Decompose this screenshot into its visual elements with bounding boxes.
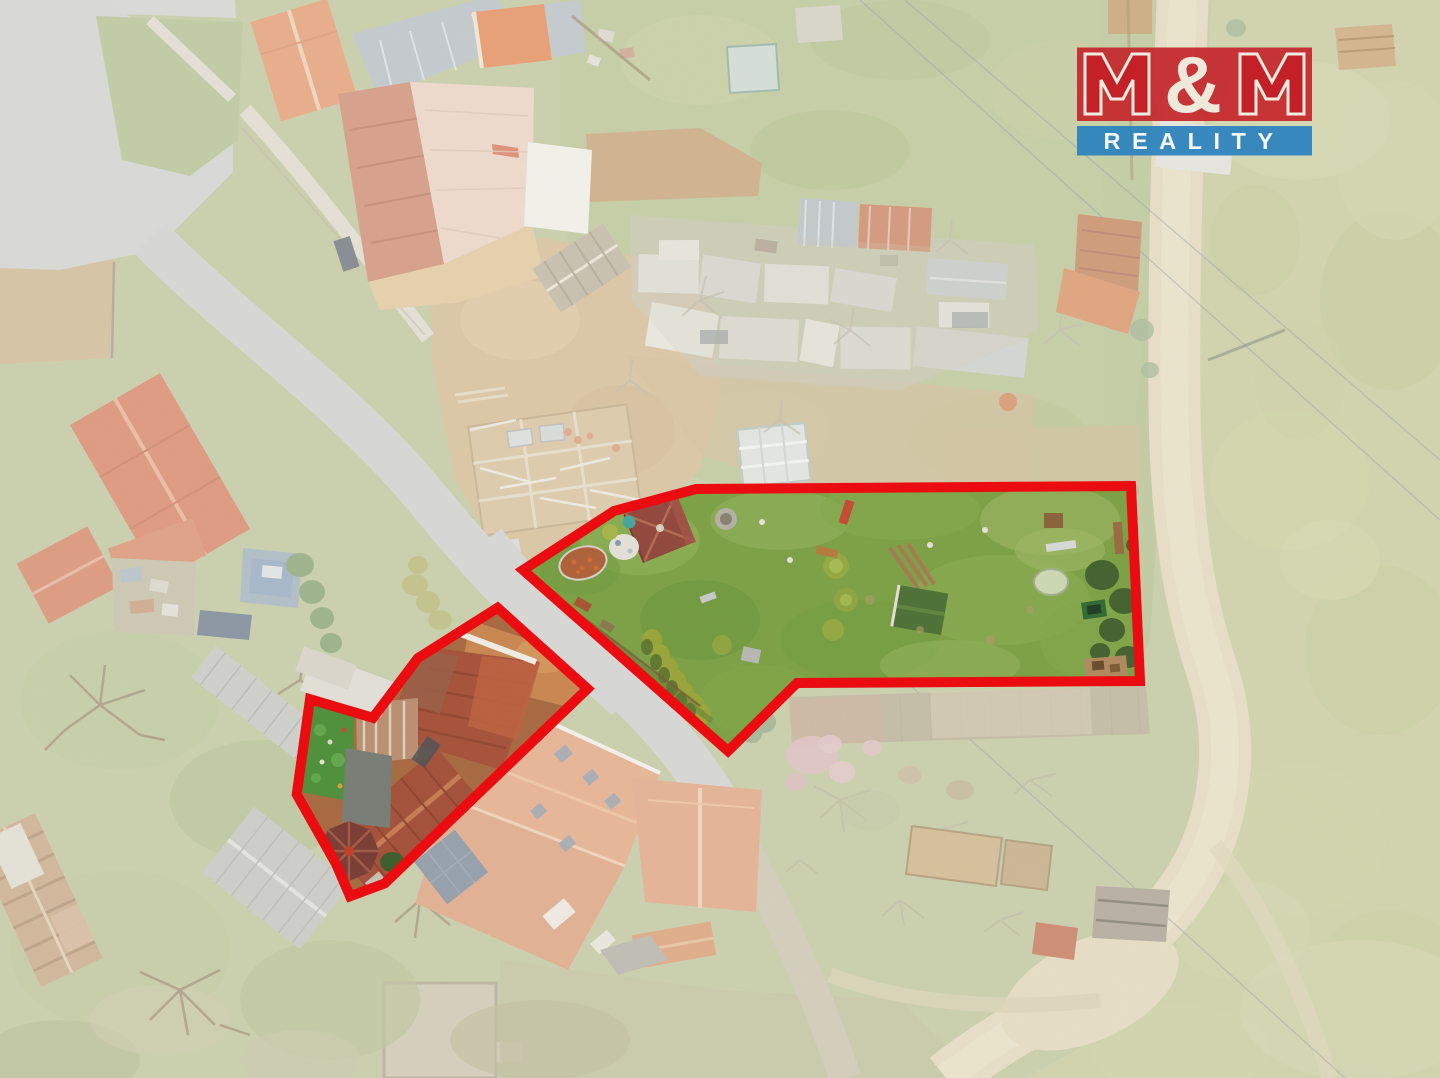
- svg-text:&: &: [1164, 40, 1222, 129]
- svg-text:REALITY: REALITY: [1103, 128, 1284, 154]
